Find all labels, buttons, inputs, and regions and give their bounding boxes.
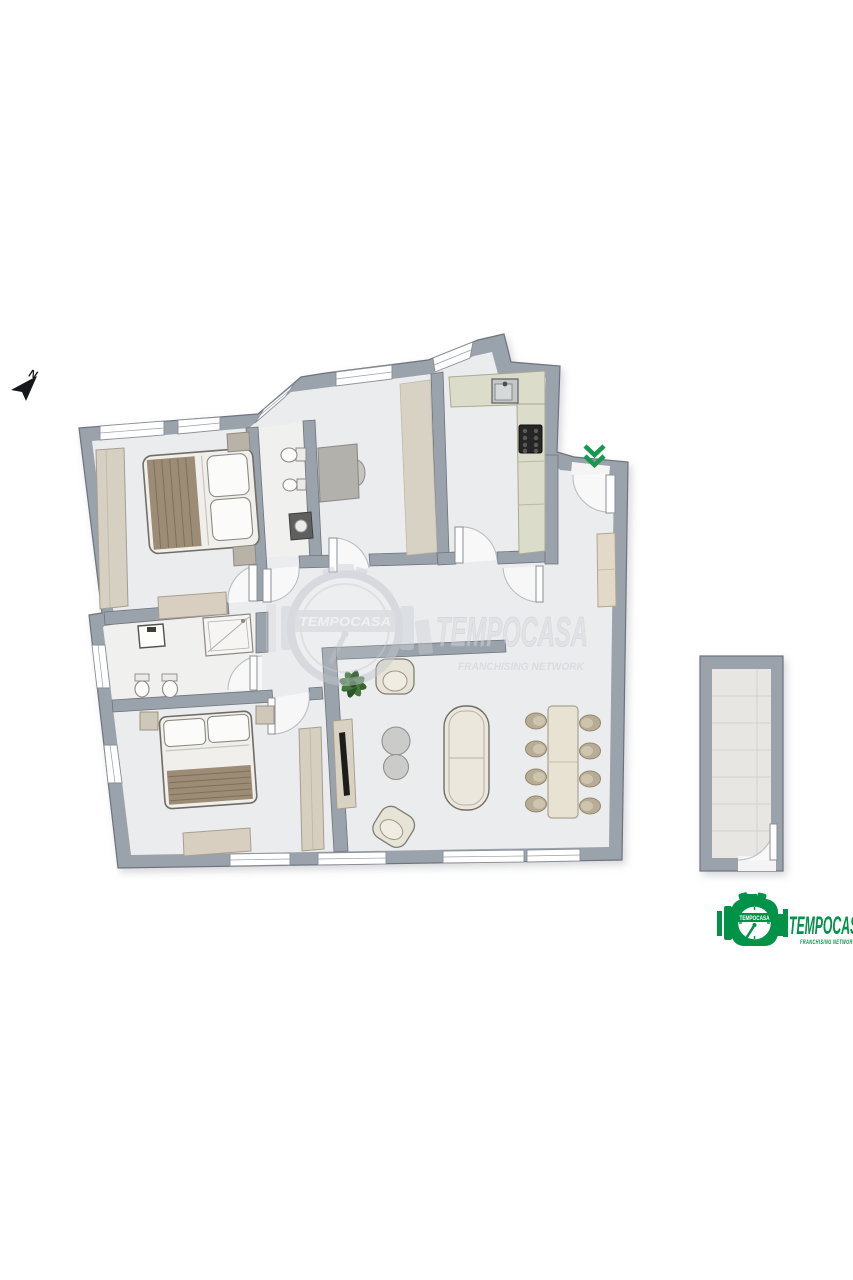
logo-lug-right — [777, 914, 783, 936]
annex-floor — [712, 669, 771, 858]
logo-bar — [717, 911, 722, 936]
bed-blanket — [167, 765, 253, 805]
double-bed-1 — [142, 448, 259, 554]
bedroom1-door-leaf — [249, 565, 257, 601]
pillow — [207, 714, 250, 743]
pillow — [163, 718, 206, 747]
logo-bridge — [745, 894, 757, 900]
nightstand — [140, 712, 158, 730]
desk — [318, 444, 359, 502]
bathroom2-door-leaf — [250, 656, 257, 690]
pillow — [210, 497, 253, 541]
watermark-badge-text: TEMPOCASA — [299, 614, 391, 629]
sink-basin — [495, 384, 512, 400]
wall-midroom-south — [369, 552, 438, 566]
watermark-brand: TEMPOCASA — [436, 608, 588, 655]
watermark-hand-pivot — [342, 631, 349, 638]
wall-bath2-bed2-right — [309, 687, 323, 700]
basin-tap — [147, 627, 156, 632]
nightstand — [227, 432, 250, 452]
floorplan-page: N TEMPOCASA TEMPOCASA FRANCHISING NETWOR… — [0, 0, 853, 1280]
wall-kitchen-hall — [545, 455, 558, 564]
logo-separator — [783, 909, 788, 937]
bidet-tap — [135, 674, 149, 681]
bidet — [135, 681, 149, 697]
wardrobe — [96, 448, 128, 609]
logo-lug-left — [724, 906, 732, 940]
logo-brand: TEMPOCASA — [789, 912, 853, 940]
nightstand — [256, 706, 274, 724]
pouf — [384, 755, 409, 780]
dresser — [158, 592, 227, 619]
sink-faucet — [503, 382, 508, 387]
bidet-tap — [297, 479, 306, 490]
tempocasa-logo: TEMPOCASA TEMPOCASA FRANCHISING NETWORK — [717, 892, 853, 946]
toilet — [163, 681, 178, 698]
dresser — [183, 828, 251, 856]
pouf — [382, 727, 410, 755]
double-bed-2 — [159, 711, 257, 809]
toilet-tank — [162, 674, 177, 681]
entry-door-leaf — [606, 475, 615, 513]
annex-room — [700, 656, 783, 871]
living-door-leaf — [536, 566, 543, 602]
shower-drain — [241, 619, 245, 623]
bathroom1-door-leaf — [263, 569, 271, 602]
rug — [400, 380, 437, 555]
watermark-bar-left — [266, 604, 276, 652]
pillow — [207, 453, 250, 497]
nightstand — [233, 545, 256, 566]
logo-tagline: FRANCHISING NETWORK — [800, 939, 853, 946]
sofa — [444, 706, 489, 810]
north-label: N — [27, 368, 40, 382]
bidet — [283, 479, 297, 491]
annex-door-leaf — [770, 824, 777, 860]
washbasin — [295, 520, 307, 532]
kitchen-door-leaf — [455, 527, 463, 563]
north-arrow: N — [11, 368, 40, 401]
watermark-tagline: FRANCHISING NETWORK — [458, 661, 585, 673]
logo-hand-pivot — [753, 923, 757, 927]
toilet — [281, 448, 297, 462]
wall-kitchen-south-left — [437, 552, 456, 565]
floorplan-canvas: N TEMPOCASA TEMPOCASA FRANCHISING NETWOR… — [0, 0, 853, 1280]
logo-badge-text: TEMPOCASA — [740, 916, 771, 922]
stove — [519, 425, 542, 453]
